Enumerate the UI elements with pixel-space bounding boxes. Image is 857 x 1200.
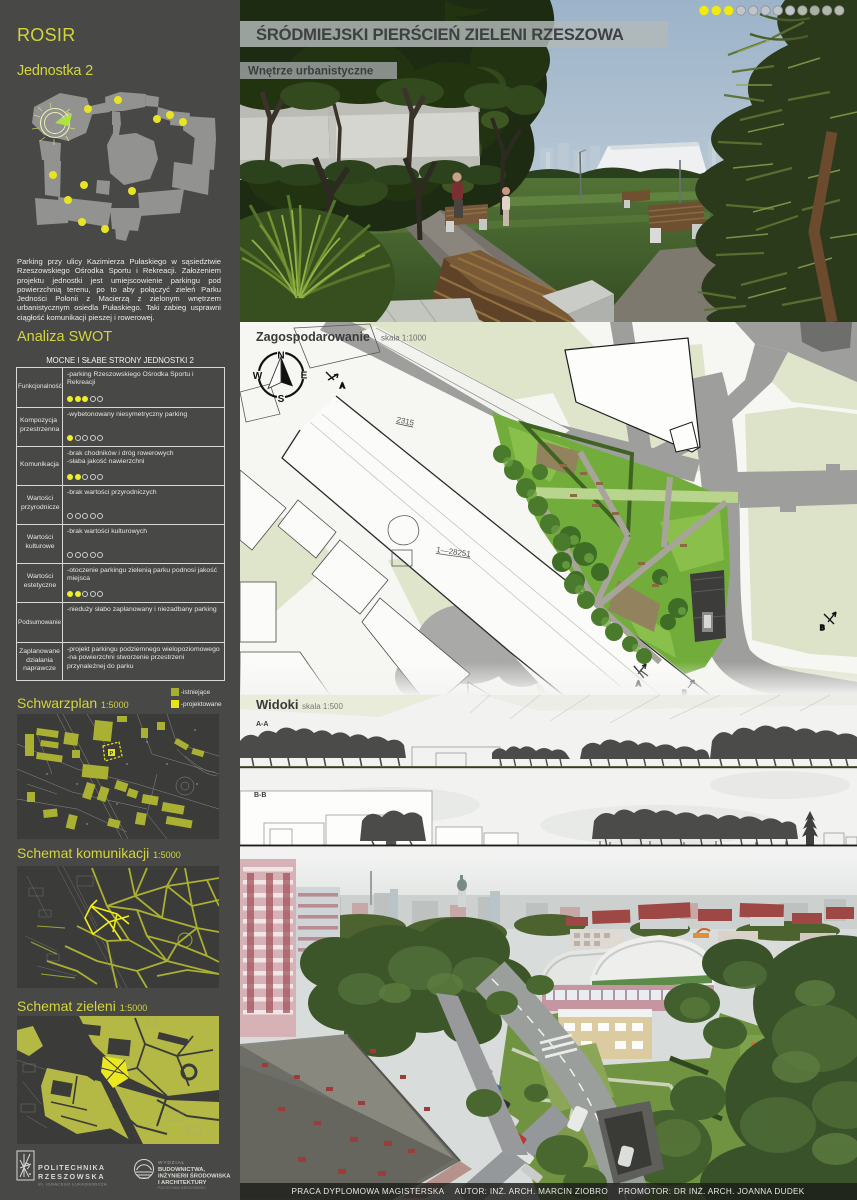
svg-text:S: S — [278, 394, 285, 405]
svg-text:W: W — [253, 371, 263, 382]
svg-text:Widoki: Widoki — [256, 697, 299, 712]
svg-text:WYDZIAŁ: WYDZIAŁ — [158, 1160, 185, 1166]
svg-text:INŻYNIERII ŚRODOWISKA: INŻYNIERII ŚRODOWISKA — [158, 1173, 231, 1180]
svg-text:POLITECHNIKI RZESZOWSKIEJ: POLITECHNIKI RZESZOWSKIEJ — [158, 1186, 206, 1190]
svg-text:B-B: B-B — [254, 792, 266, 799]
svg-text:PRACA DYPLOMOWA MAGISTERSKA: PRACA DYPLOMOWA MAGISTERSKA AUTOR: INŻ. … — [291, 1186, 804, 1196]
svg-text:B: B — [820, 625, 825, 632]
svg-text:N: N — [277, 351, 284, 362]
svg-text:P: P — [110, 751, 114, 757]
svg-text:skala 1:1000: skala 1:1000 — [381, 334, 427, 343]
svg-text:A-A: A-A — [256, 721, 268, 728]
svg-text:im. IGNACEGO ŁUKASIEWICZA: im. IGNACEGO ŁUKASIEWICZA — [38, 1182, 107, 1187]
svg-text:E: E — [301, 371, 308, 382]
svg-text:ŚRÓDMIEJSKI PIERŚCIEŃ ZIELENI: ŚRÓDMIEJSKI PIERŚCIEŃ ZIELENI RZESZOWA — [256, 25, 624, 44]
svg-text:A: A — [340, 383, 345, 390]
svg-text:BUDOWNICTWA,: BUDOWNICTWA, — [158, 1167, 205, 1173]
svg-text:Wnętrze urbanistyczne: Wnętrze urbanistyczne — [248, 66, 373, 78]
svg-text:POLITECHNIKA: POLITECHNIKA — [38, 1163, 105, 1172]
svg-text:skala 1:500: skala 1:500 — [302, 702, 343, 711]
svg-text:Zagospodarowanie: Zagospodarowanie — [256, 330, 370, 344]
svg-text:RZESZOWSKA: RZESZOWSKA — [38, 1172, 105, 1181]
svg-text:2315: 2315 — [396, 415, 416, 428]
